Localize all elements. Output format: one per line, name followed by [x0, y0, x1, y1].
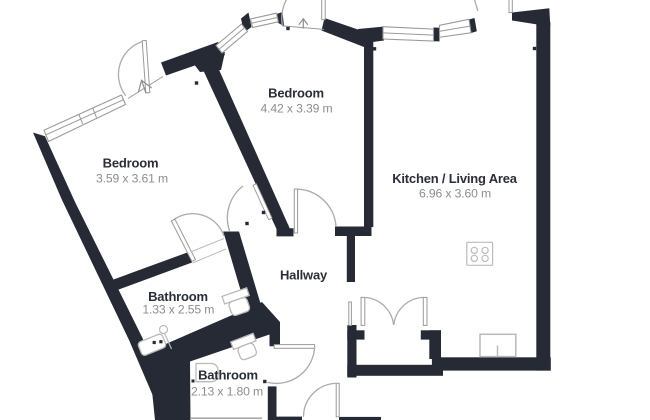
svg-text:Kitchen / Living Area: Kitchen / Living Area: [392, 171, 518, 186]
svg-text:2.13 x 1.80 m: 2.13 x 1.80 m: [191, 384, 263, 398]
svg-text:4.42 x 3.39 m: 4.42 x 3.39 m: [261, 101, 333, 115]
svg-text:Bedroom: Bedroom: [268, 86, 324, 101]
svg-text:6.96 x 3.60 m: 6.96 x 3.60 m: [419, 187, 491, 201]
svg-text:1.33 x 2.55 m: 1.33 x 2.55 m: [142, 303, 214, 317]
svg-text:Bedroom: Bedroom: [103, 156, 159, 171]
svg-text:Hallway: Hallway: [280, 268, 328, 283]
svg-text:3.59 x 3.61 m: 3.59 x 3.61 m: [96, 172, 168, 186]
svg-text:Bathroom: Bathroom: [198, 367, 258, 382]
